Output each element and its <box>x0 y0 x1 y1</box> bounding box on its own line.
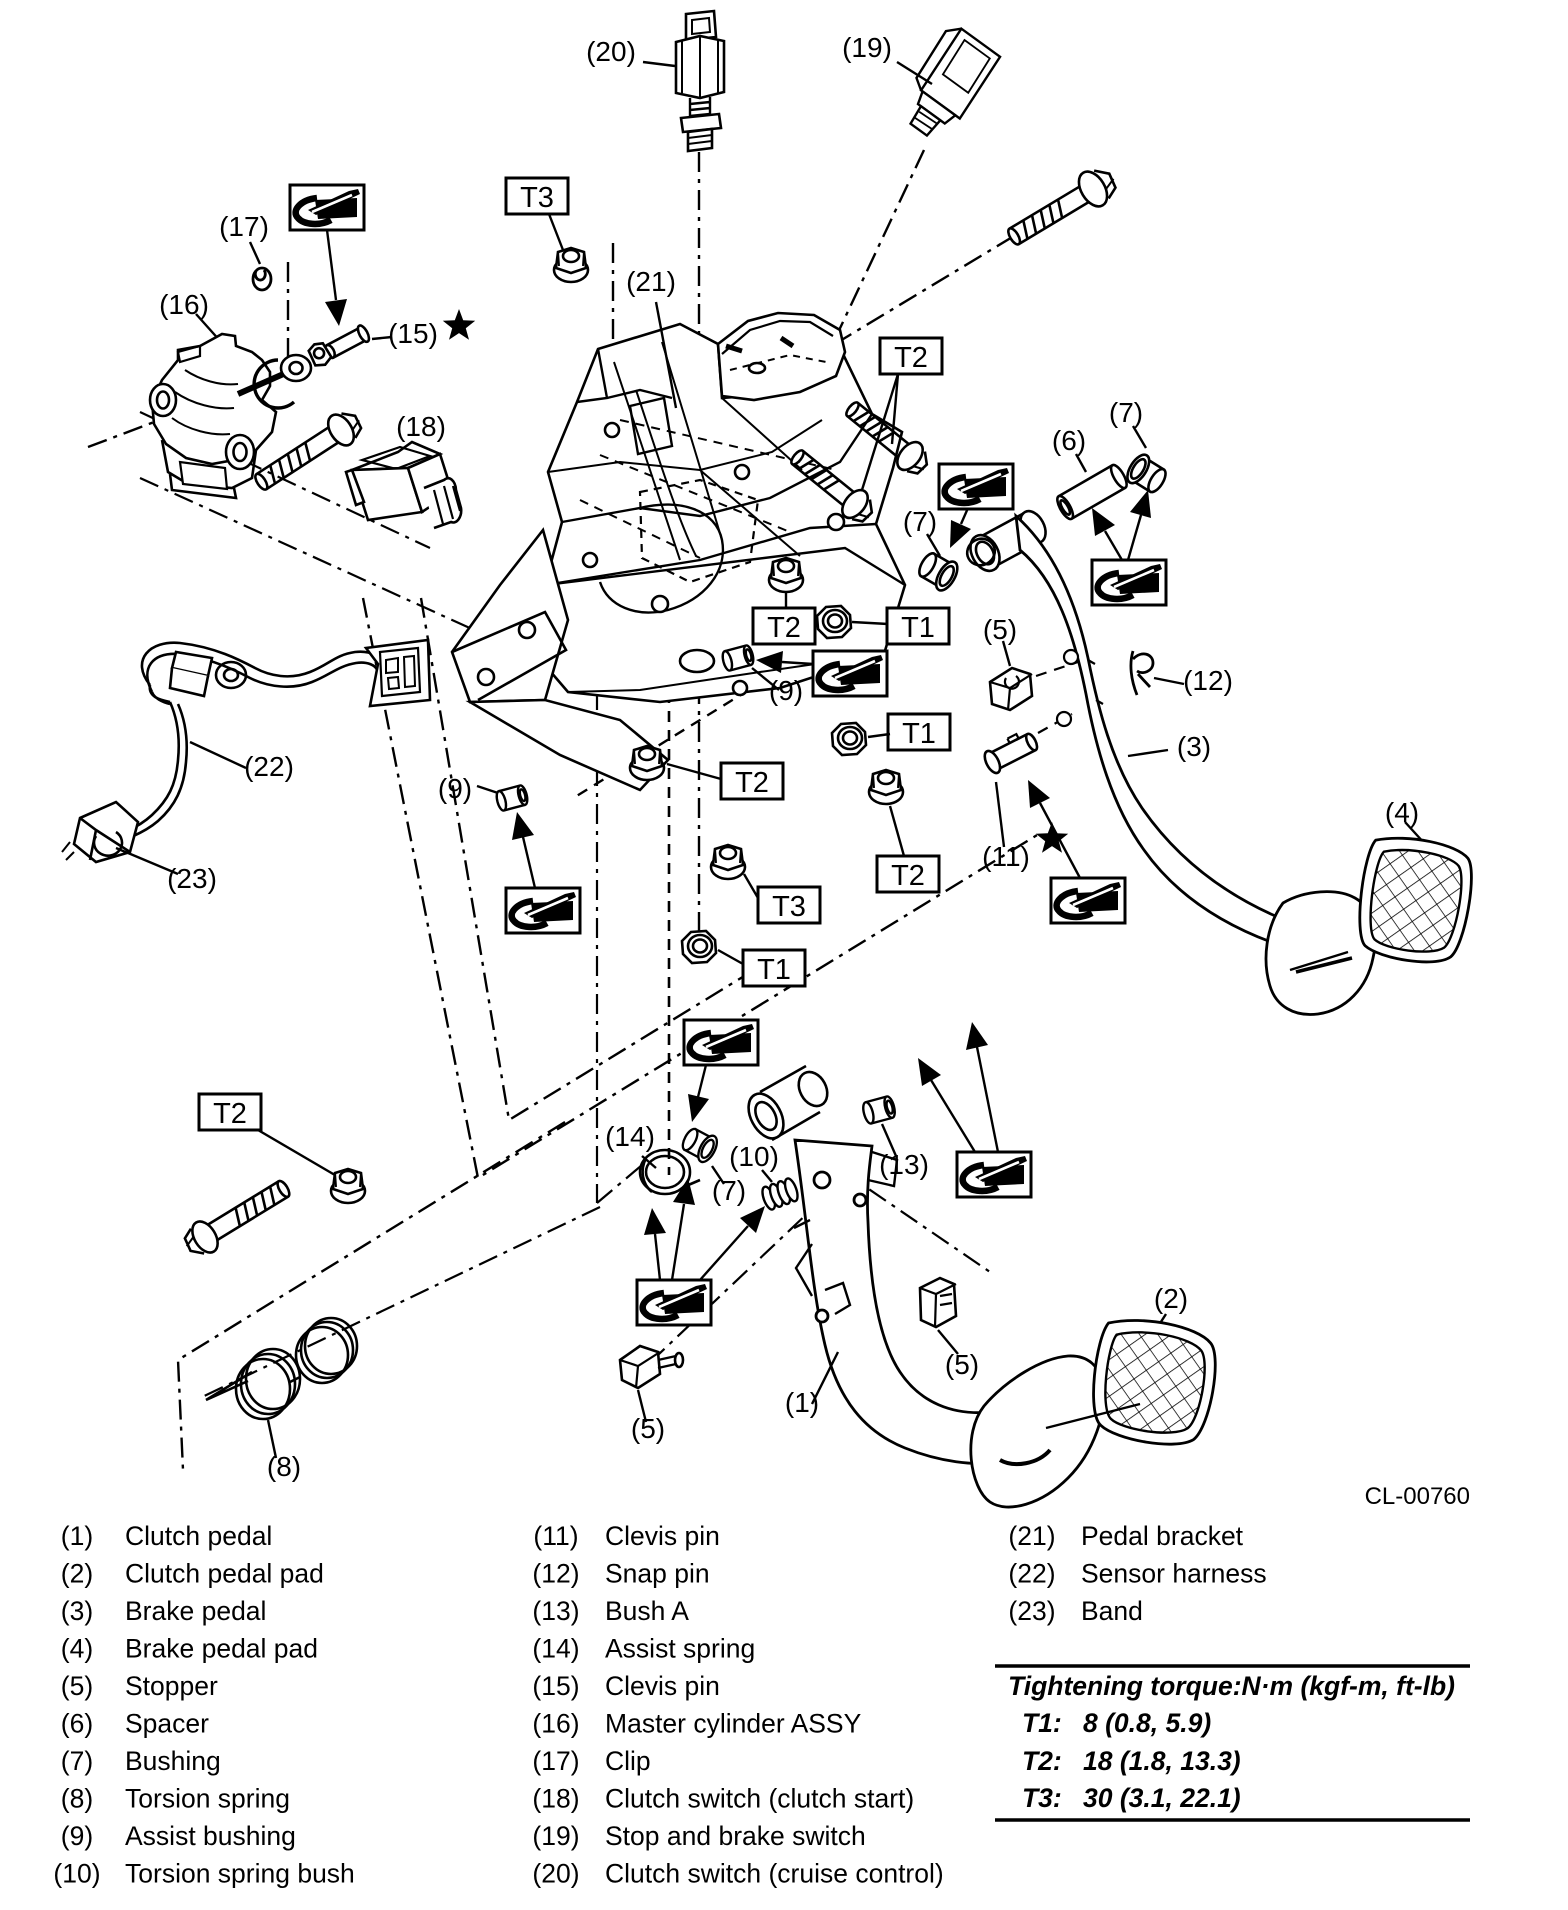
svg-text:(17): (17) <box>532 1746 579 1776</box>
svg-text:CL-00760: CL-00760 <box>1365 1483 1470 1510</box>
svg-text:(21): (21) <box>626 266 676 297</box>
svg-text:Clevis pin: Clevis pin <box>605 1671 720 1701</box>
svg-text:Torsion spring: Torsion spring <box>125 1784 290 1814</box>
svg-text:(6): (6) <box>1052 425 1086 456</box>
svg-text:(10): (10) <box>53 1859 100 1889</box>
svg-text:(14): (14) <box>605 1121 655 1152</box>
svg-text:Brake pedal: Brake pedal <box>125 1596 266 1626</box>
svg-text:Assist spring: Assist spring <box>605 1634 755 1664</box>
svg-text:(13): (13) <box>879 1149 929 1180</box>
svg-text:Clutch pedal pad: Clutch pedal pad <box>125 1559 324 1589</box>
svg-text:(13): (13) <box>532 1596 579 1626</box>
svg-text:(7): (7) <box>61 1746 93 1776</box>
svg-text:T1: T1 <box>757 954 791 986</box>
svg-text:T3: T3 <box>520 182 554 214</box>
svg-text:(3): (3) <box>61 1596 93 1626</box>
svg-text:(16): (16) <box>532 1709 579 1739</box>
svg-text:Torsion spring bush: Torsion spring bush <box>125 1859 355 1889</box>
svg-text:(5): (5) <box>61 1671 93 1701</box>
svg-text:(18): (18) <box>532 1784 579 1814</box>
svg-text:(7): (7) <box>1109 397 1143 428</box>
svg-text:Stopper: Stopper <box>125 1671 218 1701</box>
svg-text:30 (3.1, 22.1): 30 (3.1, 22.1) <box>1083 1783 1241 1813</box>
svg-text:T2: T2 <box>735 767 769 799</box>
svg-text:Bush A: Bush A <box>605 1596 689 1626</box>
svg-text:Band: Band <box>1081 1596 1143 1626</box>
svg-text:8 (0.8, 5.9): 8 (0.8, 5.9) <box>1083 1708 1211 1738</box>
svg-text:T2: T2 <box>213 1098 247 1130</box>
svg-text:Clevis pin: Clevis pin <box>605 1521 720 1551</box>
svg-text:(6): (6) <box>61 1709 93 1739</box>
svg-text:(12): (12) <box>1183 665 1233 696</box>
svg-text:T2: T2 <box>767 612 801 644</box>
svg-text:18 (1.8, 13.3): 18 (1.8, 13.3) <box>1083 1746 1241 1776</box>
svg-text:(8): (8) <box>61 1784 93 1814</box>
svg-text:(5): (5) <box>631 1413 665 1444</box>
svg-text:(3): (3) <box>1177 731 1211 762</box>
svg-text:(11): (11) <box>533 1521 578 1551</box>
svg-text:(7): (7) <box>903 506 937 537</box>
svg-text:(9): (9) <box>769 675 803 706</box>
svg-text:(20): (20) <box>586 36 636 67</box>
svg-text:T3:: T3: <box>1022 1783 1062 1813</box>
svg-text:Assist bushing: Assist bushing <box>125 1821 296 1851</box>
svg-text:Clutch pedal: Clutch pedal <box>125 1521 272 1551</box>
svg-text:(7): (7) <box>712 1175 746 1206</box>
svg-text:(4): (4) <box>61 1634 93 1664</box>
svg-text:Pedal bracket: Pedal bracket <box>1081 1521 1244 1551</box>
svg-text:(15): (15) <box>532 1671 579 1701</box>
svg-text:(1): (1) <box>61 1521 93 1551</box>
svg-text:(11): (11) <box>982 841 1030 872</box>
svg-text:(5): (5) <box>945 1349 979 1380</box>
svg-text:Clutch switch (cruise control): Clutch switch (cruise control) <box>605 1859 944 1889</box>
svg-text:(14): (14) <box>532 1634 579 1664</box>
svg-text:(8): (8) <box>267 1451 301 1482</box>
svg-text:Stop and brake switch: Stop and brake switch <box>605 1821 866 1851</box>
svg-text:Spacer: Spacer <box>125 1709 209 1739</box>
svg-text:T2: T2 <box>891 860 925 892</box>
svg-text:Sensor harness: Sensor harness <box>1081 1559 1267 1589</box>
svg-text:(9): (9) <box>61 1821 93 1851</box>
svg-text:T3: T3 <box>772 891 806 923</box>
svg-text:(22): (22) <box>1008 1559 1055 1589</box>
svg-text:(20): (20) <box>532 1859 579 1889</box>
svg-text:Master cylinder ASSY: Master cylinder ASSY <box>605 1709 862 1739</box>
svg-text:(23): (23) <box>1008 1596 1055 1626</box>
svg-text:(19): (19) <box>842 32 892 63</box>
svg-text:(4): (4) <box>1385 797 1419 828</box>
svg-text:T1:: T1: <box>1022 1708 1062 1738</box>
svg-text:(9): (9) <box>438 773 472 804</box>
svg-text:(22): (22) <box>244 751 294 782</box>
svg-text:Brake pedal pad: Brake pedal pad <box>125 1634 318 1664</box>
svg-text:Clutch switch (clutch start): Clutch switch (clutch start) <box>605 1784 914 1814</box>
svg-text:Snap pin: Snap pin <box>605 1559 710 1589</box>
svg-text:Tightening torque:N·m (kgf-m,: Tightening torque:N·m (kgf-m, ft-lb) <box>1008 1671 1455 1701</box>
svg-text:(15): (15) <box>388 318 438 349</box>
svg-text:(2): (2) <box>1154 1283 1188 1314</box>
svg-text:T2: T2 <box>894 342 928 374</box>
svg-text:(2): (2) <box>61 1559 93 1589</box>
svg-text:T1: T1 <box>901 612 935 644</box>
svg-text:(23): (23) <box>167 863 217 894</box>
svg-text:(5): (5) <box>983 614 1017 645</box>
svg-text:Bushing: Bushing <box>125 1746 221 1776</box>
svg-text:(16): (16) <box>159 289 209 320</box>
svg-text:(12): (12) <box>532 1559 579 1589</box>
svg-text:(10): (10) <box>729 1141 779 1172</box>
svg-text:T2:: T2: <box>1022 1746 1062 1776</box>
svg-text:T1: T1 <box>902 718 936 750</box>
svg-text:(21): (21) <box>1008 1521 1055 1551</box>
svg-text:Clip: Clip <box>605 1746 651 1776</box>
svg-text:(17): (17) <box>219 211 269 242</box>
svg-text:(19): (19) <box>532 1821 579 1851</box>
svg-text:(18): (18) <box>396 411 446 442</box>
